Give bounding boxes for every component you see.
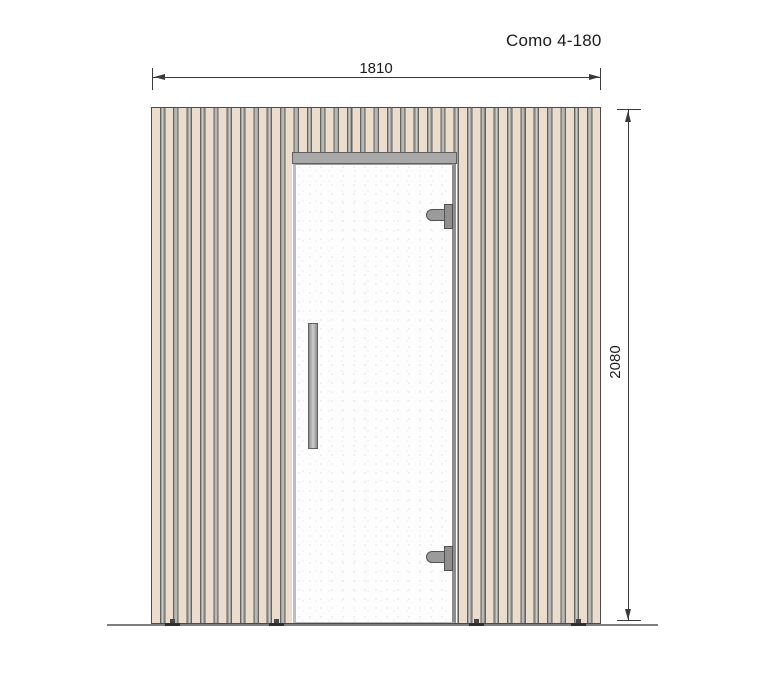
height-dimension-arrow-up [625, 111, 631, 122]
door-handle [308, 323, 318, 449]
height-dimension-arrow-down [625, 609, 631, 620]
width-dimension-tick-left [152, 68, 153, 90]
slatted-wall-panel [151, 107, 601, 624]
drawing-canvas: { "title": "Como 4-180", "dimensions": {… [0, 0, 768, 677]
height-dimension-tick-bottom [617, 620, 641, 621]
adjustable-foot [165, 619, 180, 627]
width-dimension-label: 1810 [346, 60, 406, 77]
height-dimension-line [628, 110, 629, 621]
adjustable-foot [571, 619, 586, 627]
door-header-bar [292, 152, 457, 164]
width-dimension-arrow-right [589, 74, 600, 80]
width-dimension-tick-right [600, 68, 601, 90]
adjustable-foot [269, 619, 284, 627]
hinge-bottom-plate [444, 546, 453, 571]
height-dimension-tick-top [617, 109, 641, 110]
hinge-top-plate [444, 204, 453, 229]
drawing-title: Como 4-180 [506, 31, 602, 51]
adjustable-foot [469, 619, 484, 627]
height-dimension-label: 2080 [607, 338, 625, 386]
width-dimension-line [153, 77, 600, 78]
width-dimension-arrow-left [154, 74, 165, 80]
